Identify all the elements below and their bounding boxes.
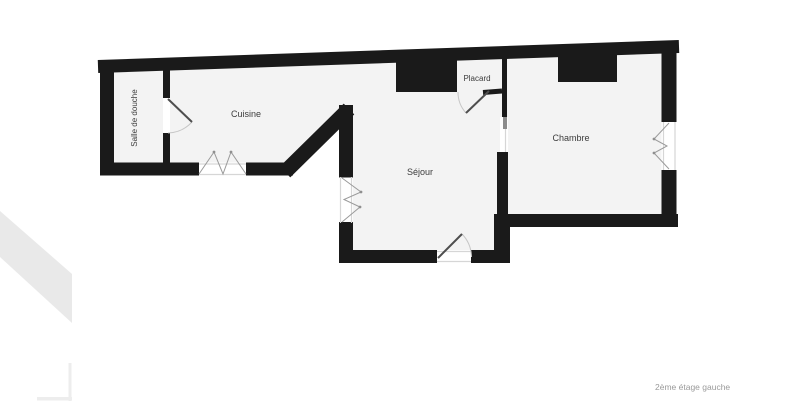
room-label-salle-de-douche: Salle de douche bbox=[130, 89, 139, 147]
bathroom-door-opening bbox=[163, 98, 170, 133]
floor-plan-page: Salle de douche Cuisine Placard Séjour C… bbox=[0, 0, 790, 407]
watermark-band bbox=[0, 211, 72, 323]
door-leaf-icon bbox=[503, 117, 507, 129]
chambre-duct-block bbox=[558, 55, 617, 82]
floor-plan-svg: Salle de douche Cuisine Placard Séjour C… bbox=[0, 0, 790, 407]
sejour-duct-block bbox=[396, 59, 457, 92]
room-label-placard: Placard bbox=[463, 74, 490, 83]
window-handle-dot bbox=[360, 191, 363, 194]
window-handle-dot bbox=[653, 152, 656, 155]
window-handle-dot bbox=[213, 151, 216, 154]
window-handle-dot bbox=[230, 151, 233, 154]
room-label-cuisine: Cuisine bbox=[231, 109, 261, 119]
placard-bottom-stub bbox=[483, 91, 502, 93]
window-handle-dot bbox=[653, 138, 656, 141]
watermark-mark-vertical bbox=[69, 363, 72, 401]
window-handle-dot bbox=[359, 206, 362, 209]
watermark-mark-horizontal bbox=[37, 397, 72, 401]
plan-caption: 2ème étage gauche bbox=[655, 382, 730, 392]
room-label-sejour: Séjour bbox=[407, 167, 433, 177]
room-label-chambre: Chambre bbox=[552, 133, 589, 143]
